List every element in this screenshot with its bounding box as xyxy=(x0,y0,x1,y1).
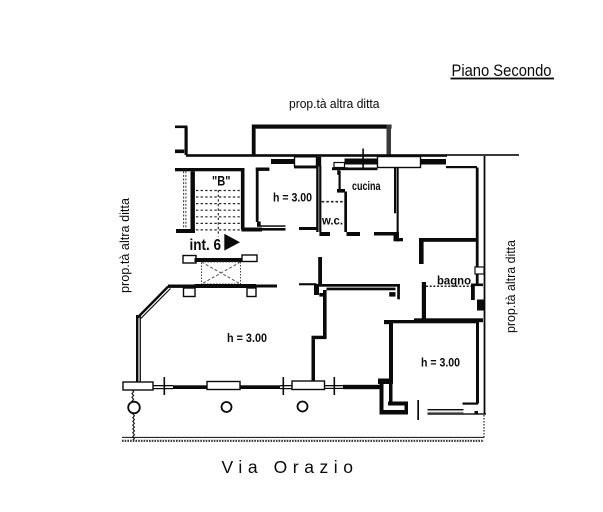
svg-text:Piano Secondo: Piano Secondo xyxy=(452,62,552,80)
svg-text:prop.tà altra ditta: prop.tà altra ditta xyxy=(504,240,518,333)
svg-text:h = 3.00: h = 3.00 xyxy=(421,356,460,370)
svg-text:int. 6: int. 6 xyxy=(190,237,222,254)
svg-text:prop.tà altra ditta: prop.tà altra ditta xyxy=(289,97,380,111)
svg-text:cucina: cucina xyxy=(352,179,381,193)
svg-text:prop.tà altra ditta: prop.tà altra ditta xyxy=(118,198,132,293)
svg-text:"B": "B" xyxy=(212,173,231,189)
svg-text:w.c.: w.c. xyxy=(321,216,343,228)
svg-text:h = 3.00: h = 3.00 xyxy=(273,191,312,205)
svg-text:h = 3.00: h = 3.00 xyxy=(227,331,267,345)
